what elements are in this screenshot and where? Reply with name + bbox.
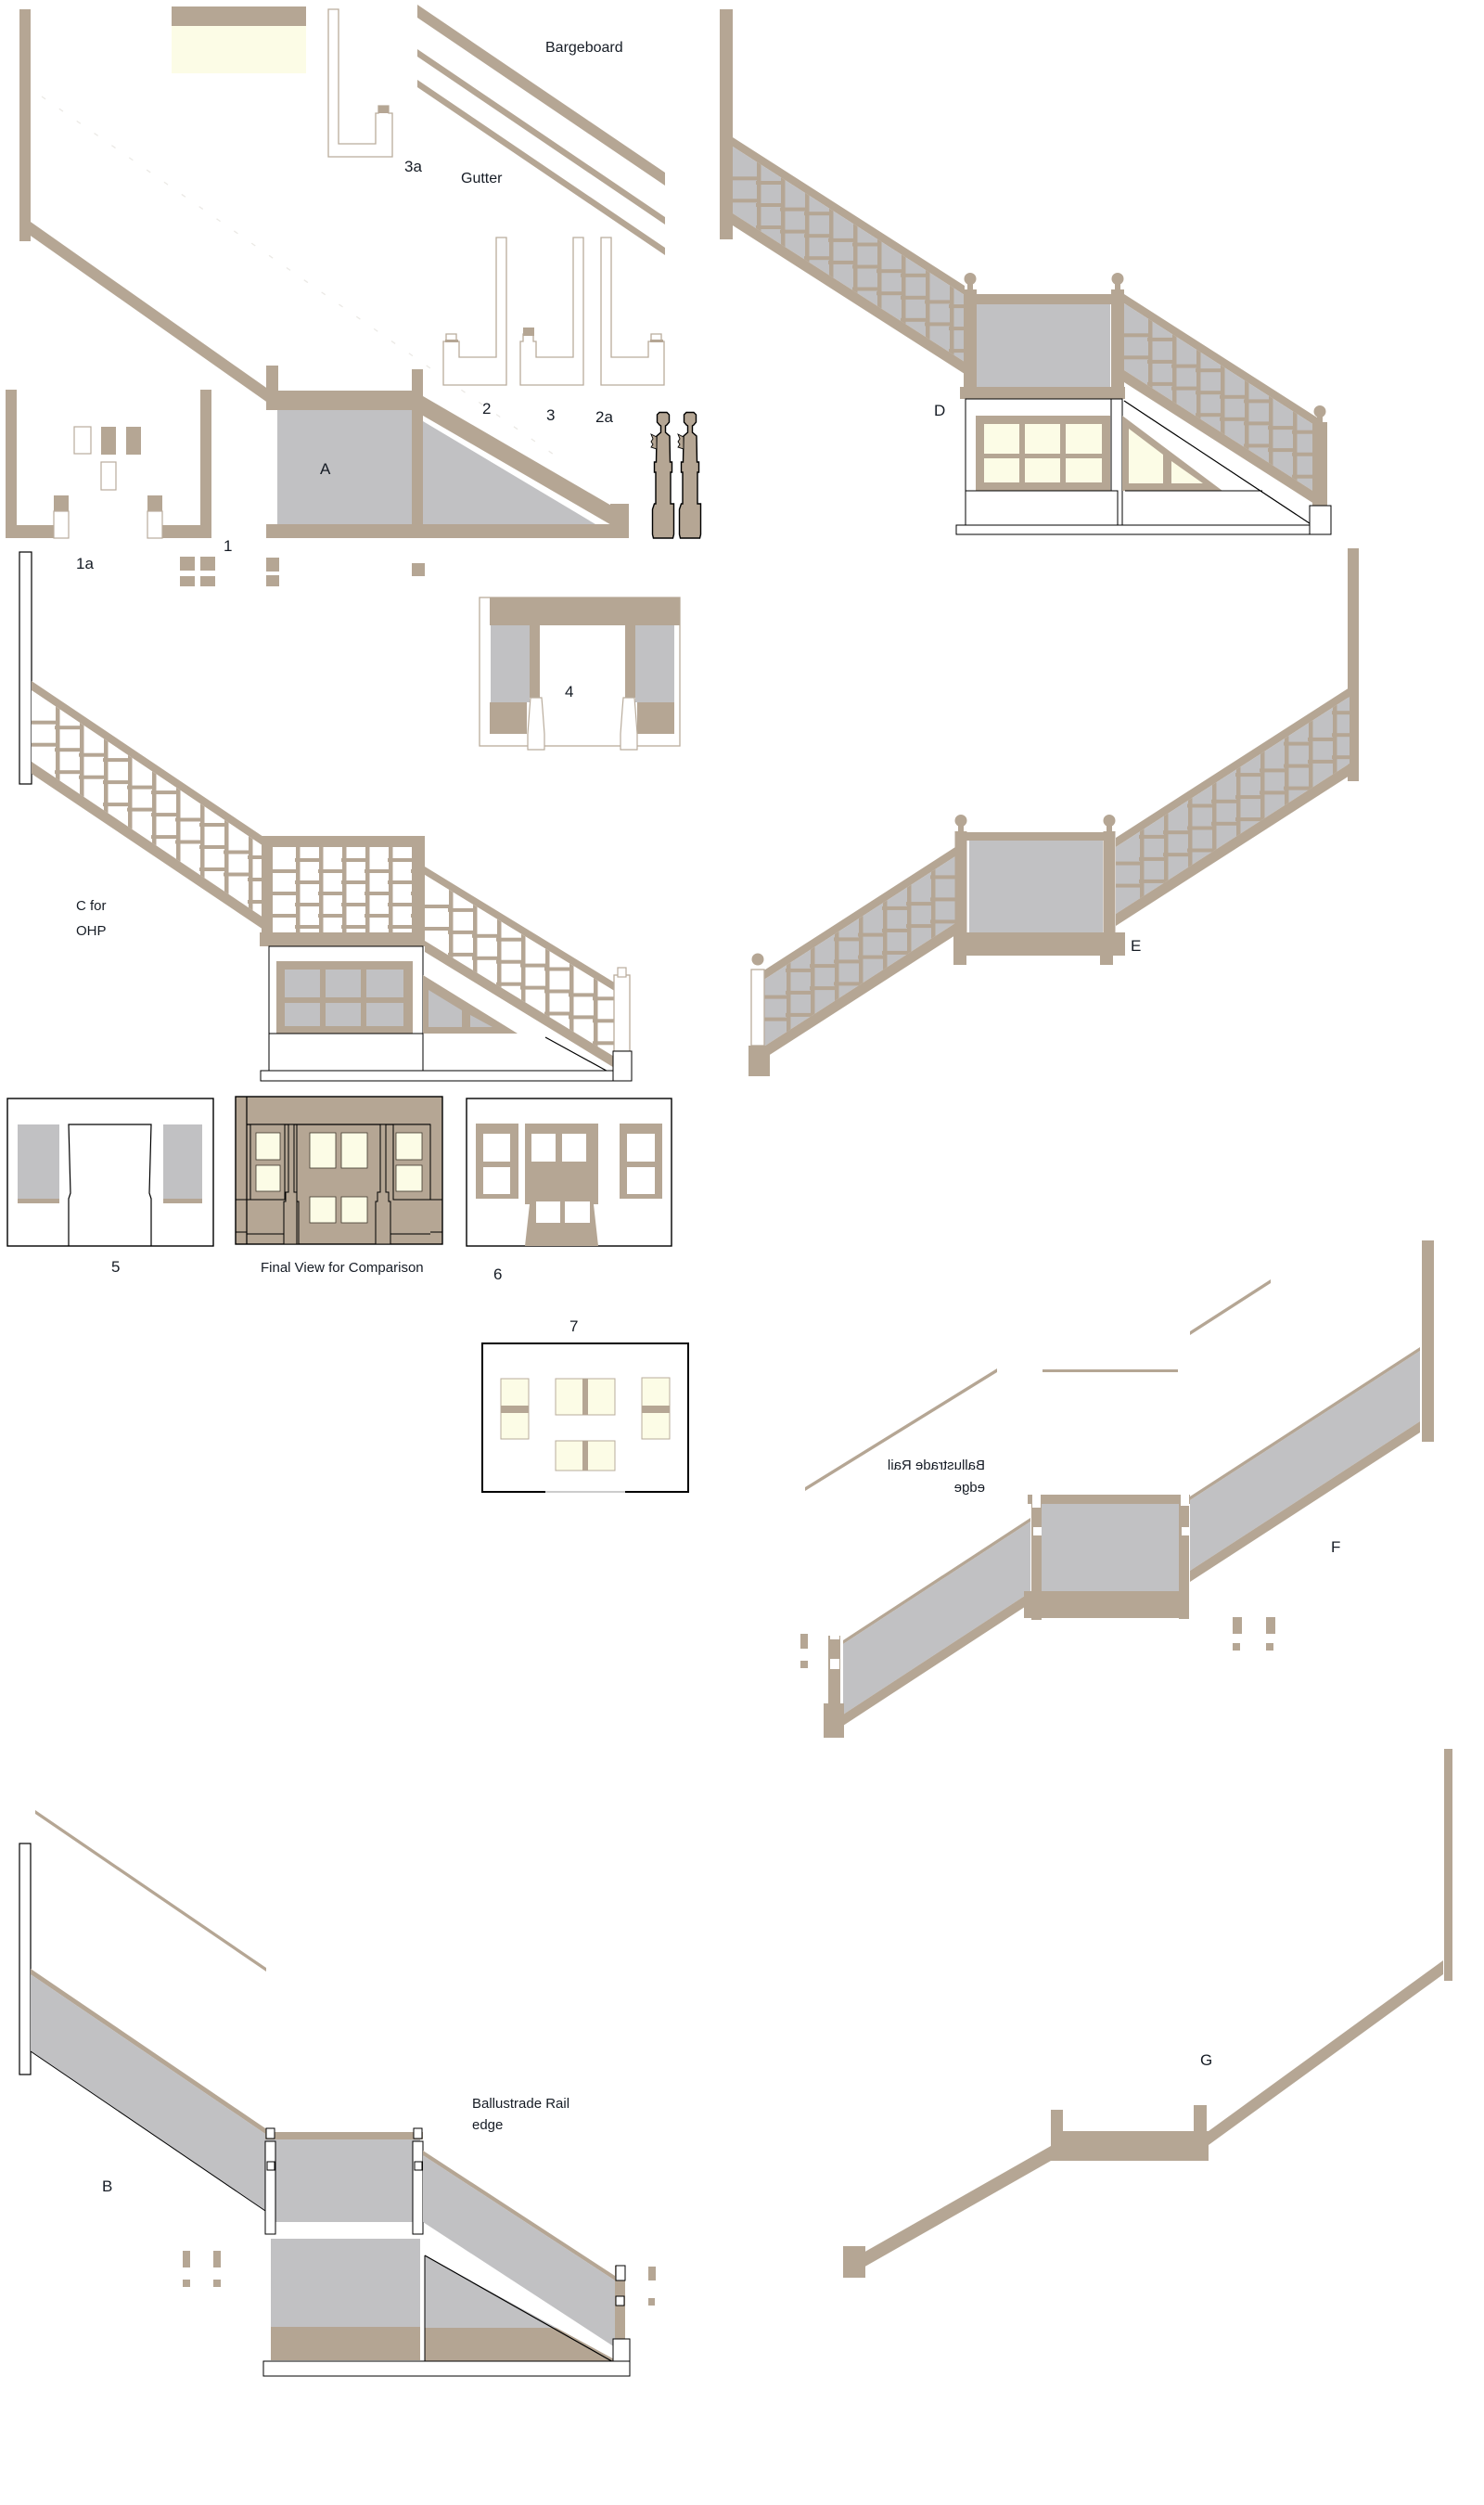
svg-text:Final View for Comparison: Final View for Comparison	[261, 1260, 424, 1276]
svg-text:4: 4	[565, 683, 573, 700]
svg-text:Gutter: Gutter	[461, 171, 503, 186]
svg-text:D: D	[934, 402, 945, 419]
svg-text:A: A	[320, 460, 331, 478]
svg-text:F: F	[1331, 1538, 1340, 1556]
svg-text:Ballustrade Rail: Ballustrade Rail	[888, 1458, 985, 1473]
svg-text:OHP: OHP	[76, 923, 107, 939]
svg-text:5: 5	[111, 1258, 120, 1276]
svg-text:2: 2	[482, 400, 491, 417]
svg-text:3a: 3a	[404, 158, 422, 175]
svg-text:edge: edge	[472, 2117, 503, 2133]
svg-text:E: E	[1131, 937, 1141, 955]
svg-text:1a: 1a	[76, 555, 94, 572]
svg-text:edge: edge	[954, 1480, 985, 1496]
svg-text:B: B	[102, 2177, 112, 2195]
svg-text:3: 3	[546, 406, 555, 424]
svg-text:Bargeboard: Bargeboard	[545, 40, 623, 56]
svg-text:Ballustrade Rail: Ballustrade Rail	[472, 2096, 569, 2112]
svg-text:2a: 2a	[595, 408, 613, 426]
svg-text:C for: C for	[76, 898, 107, 914]
svg-text:6: 6	[493, 1265, 502, 1283]
svg-text:G: G	[1200, 2051, 1212, 2069]
svg-text:7: 7	[569, 1317, 578, 1335]
svg-text:1: 1	[224, 537, 232, 555]
